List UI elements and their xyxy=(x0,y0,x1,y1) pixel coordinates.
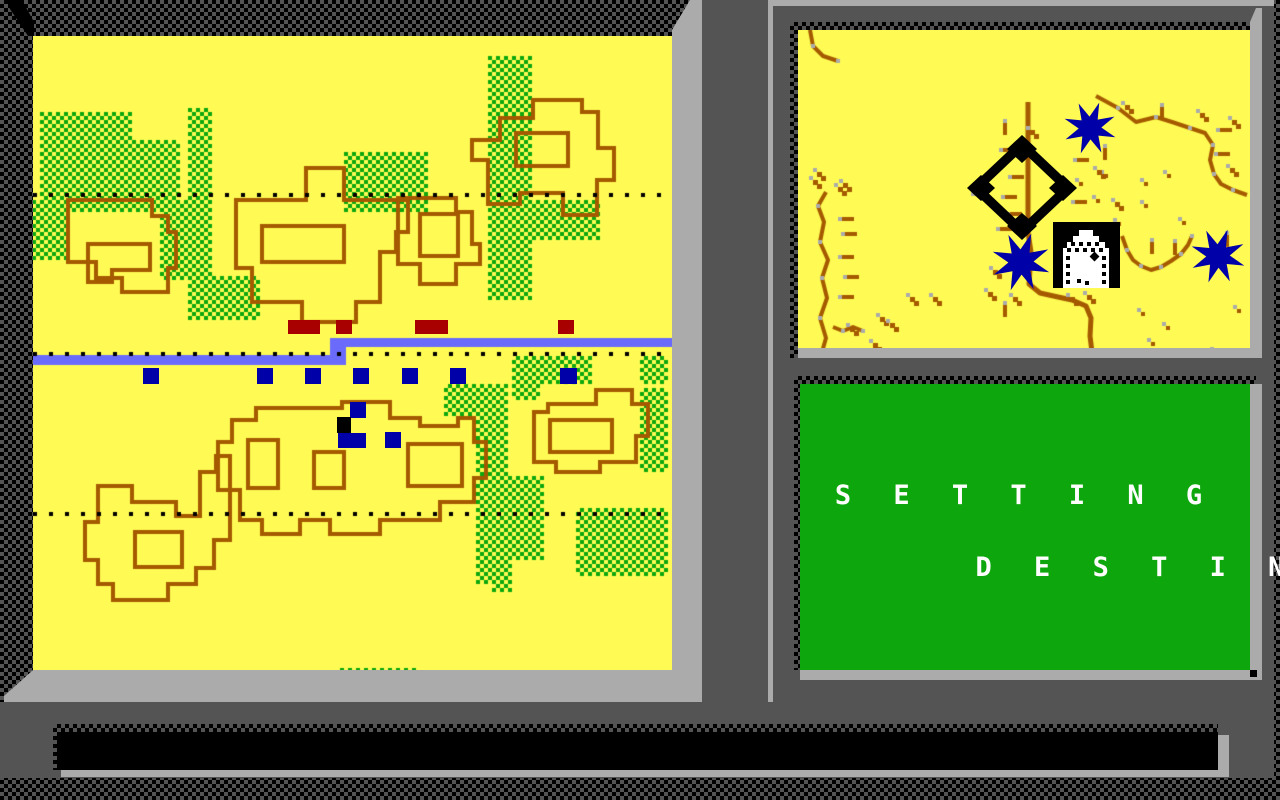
message-line-2: D E S T I N A T I O N xyxy=(976,552,1280,583)
tactical-panel-bevel xyxy=(1250,8,1262,358)
tactical-panel-border xyxy=(790,22,1254,30)
strategic-map-canvas[interactable] xyxy=(33,36,672,670)
status-bar[interactable] xyxy=(57,732,1218,770)
status-message: S E T T I N G D E S T I N A T I O N xyxy=(800,478,1250,586)
status-bar-bevel xyxy=(61,770,1229,777)
tactical-panel-border xyxy=(790,22,798,358)
status-bar-border xyxy=(53,724,1218,732)
bevel-notch xyxy=(1250,670,1257,677)
panel-gap xyxy=(702,0,768,706)
tactical-map-canvas[interactable] xyxy=(798,30,1250,348)
game-screen: { "message": { "line1": "S E T T I N G",… xyxy=(0,0,1280,800)
message-panel-border xyxy=(794,376,1256,384)
message-panel: S E T T I N G D E S T I N A T I O N xyxy=(800,384,1250,670)
message-line-1: S E T T I N G xyxy=(835,480,1215,511)
tactical-panel-bevel xyxy=(798,348,1262,358)
message-panel-bevel xyxy=(800,670,1262,680)
message-panel-bevel xyxy=(1250,384,1262,680)
status-bar-bevel xyxy=(1218,735,1229,777)
